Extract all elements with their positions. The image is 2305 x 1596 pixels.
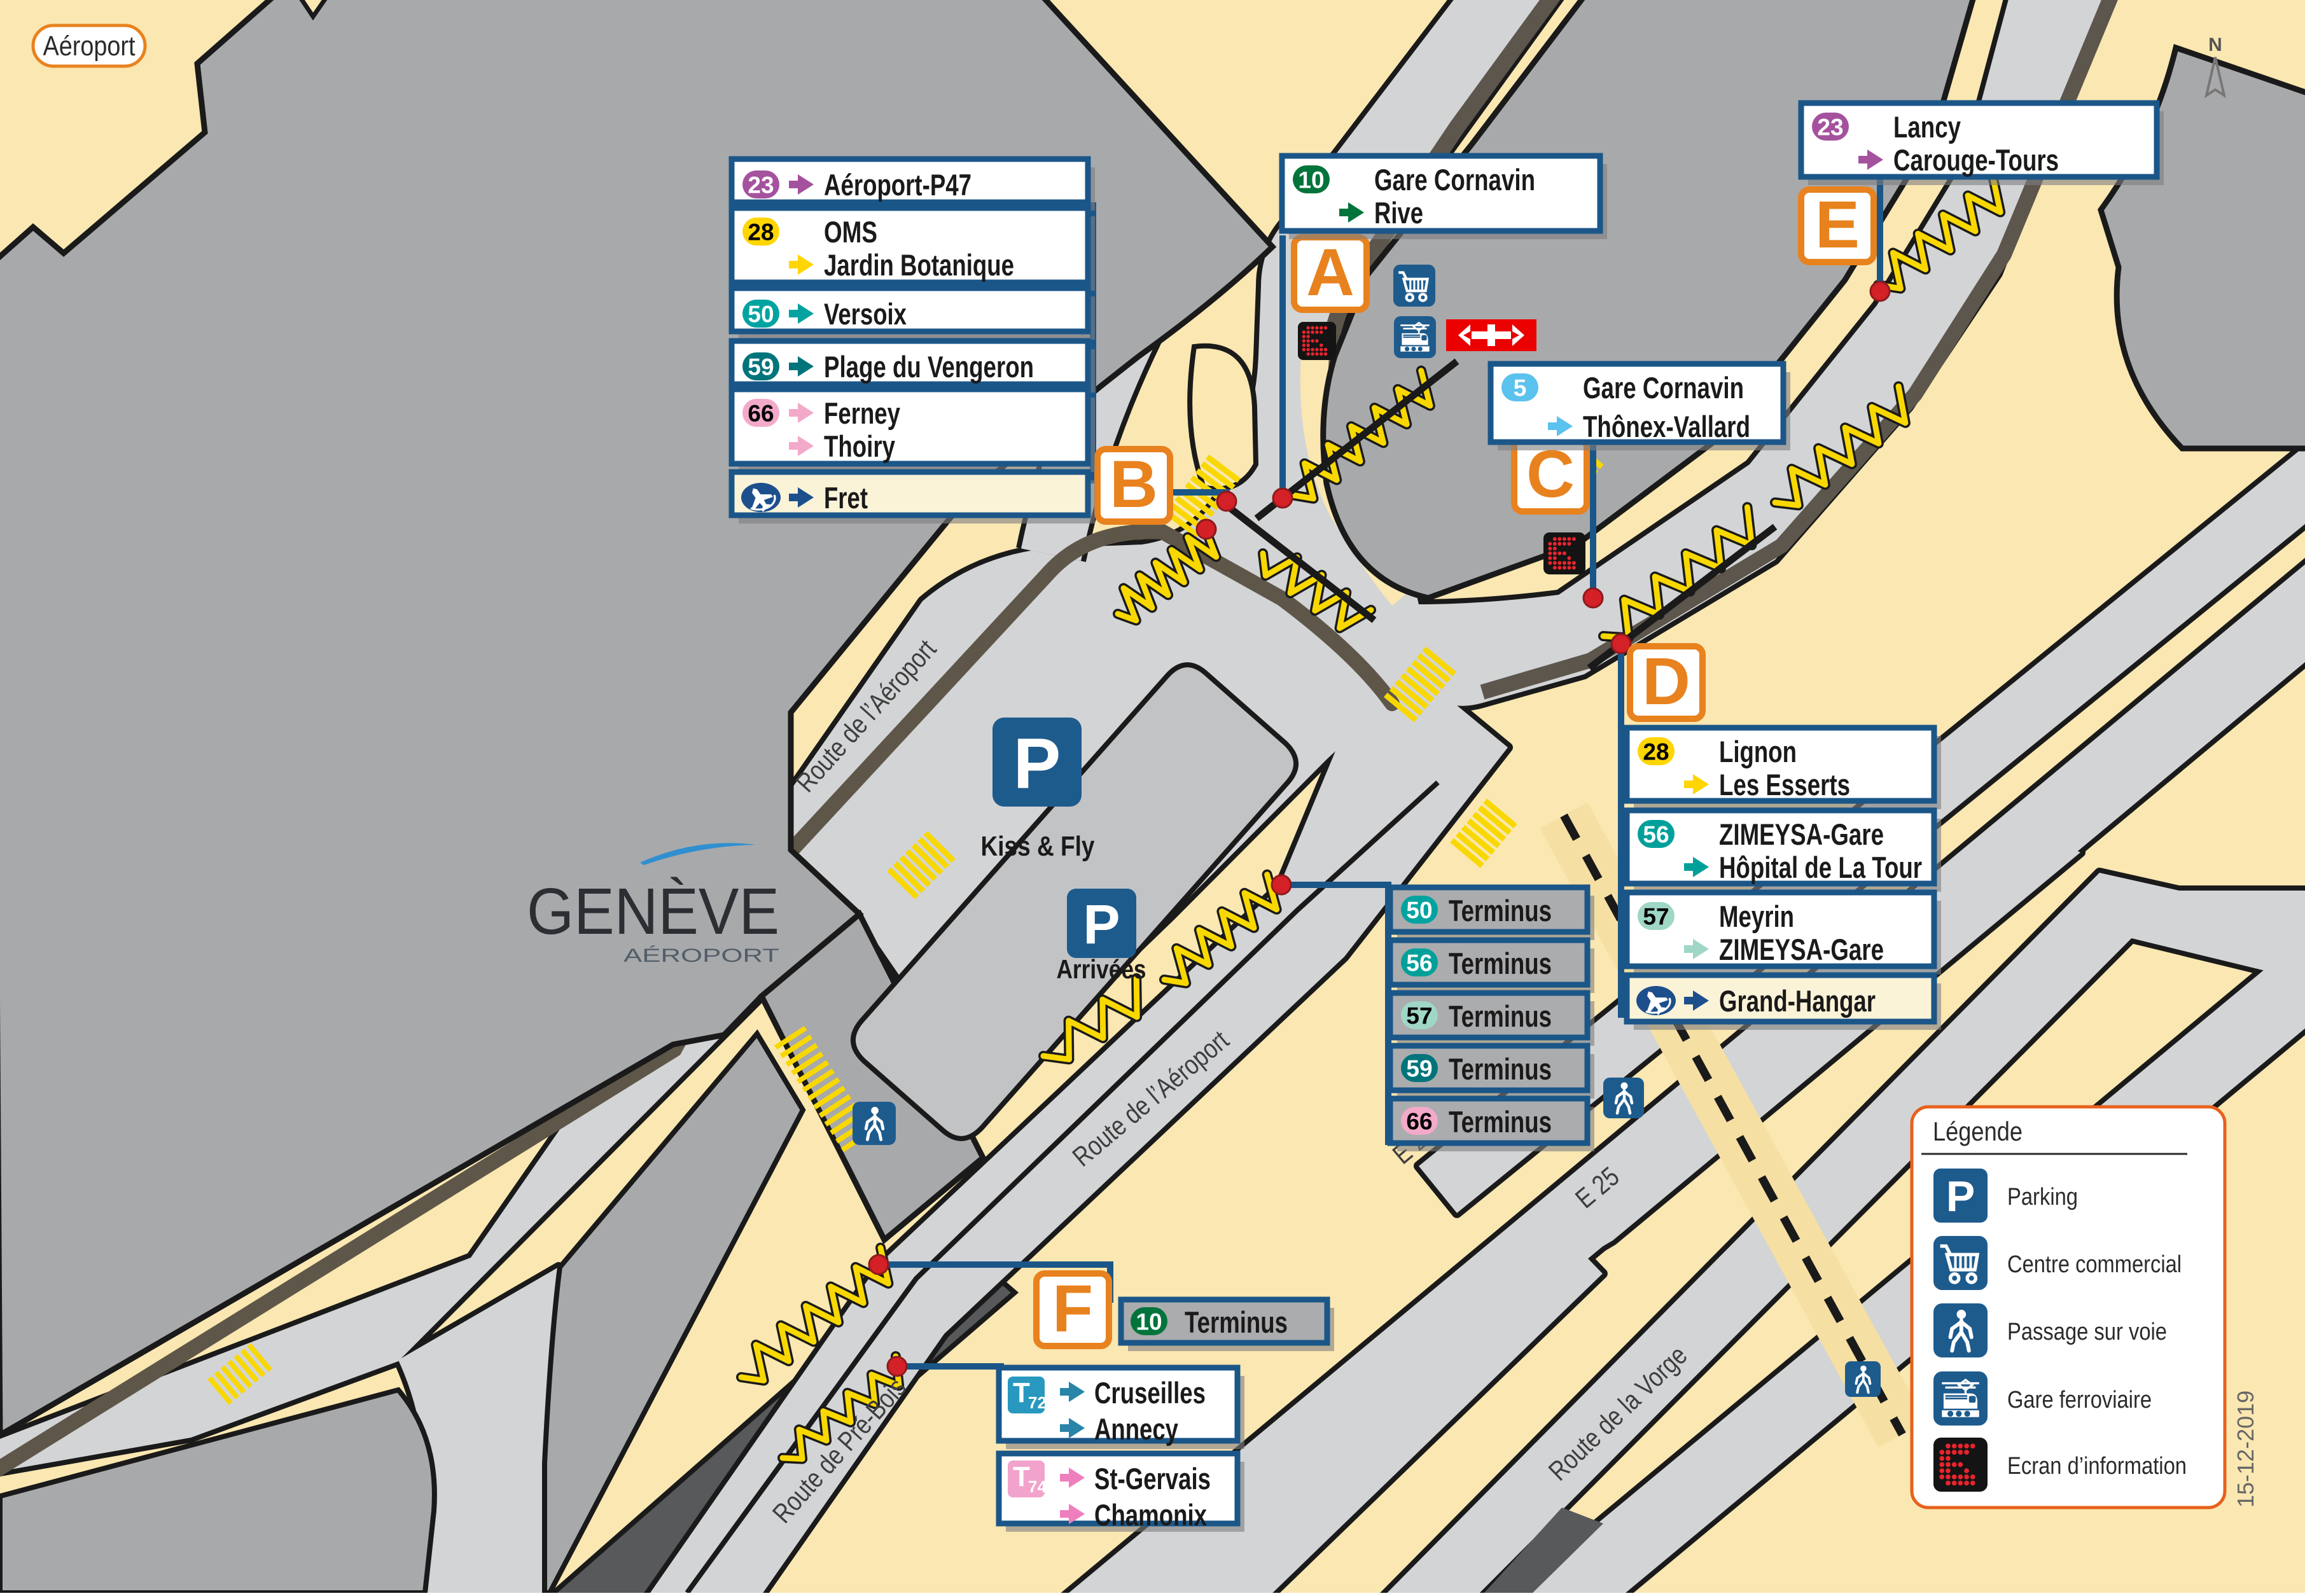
svg-text:Terminus: Terminus [1185, 1305, 1288, 1339]
svg-text:5: 5 [1514, 375, 1527, 401]
svg-text:Thônex-Vallard: Thônex-Vallard [1583, 410, 1750, 443]
svg-text:50: 50 [1406, 897, 1432, 923]
svg-text:Aéroport-P47: Aéroport-P47 [824, 168, 971, 202]
svg-text:Centre commercial: Centre commercial [2007, 1251, 2182, 1278]
svg-text:E: E [1815, 188, 1860, 262]
svg-text:59: 59 [748, 354, 774, 380]
svg-text:Terminus: Terminus [1449, 894, 1552, 927]
svg-text:23: 23 [1817, 114, 1843, 140]
svg-text:Arrivées: Arrivées [1057, 954, 1146, 984]
svg-text:P: P [1946, 1172, 1975, 1221]
svg-text:Jardin Botanique: Jardin Botanique [824, 248, 1014, 282]
svg-text:Carouge-Tours: Carouge-Tours [1893, 143, 2059, 177]
svg-text:OMS: OMS [824, 215, 877, 249]
svg-text:St-Gervais: St-Gervais [1094, 1462, 1211, 1495]
svg-text:Lancy: Lancy [1893, 110, 1961, 144]
svg-text:74: 74 [1028, 1477, 1047, 1496]
svg-text:Ecran d’information: Ecran d’information [2007, 1453, 2187, 1480]
svg-text:Grand-Hangar: Grand-Hangar [1719, 984, 1876, 1018]
svg-text:F: F [1052, 1272, 1093, 1346]
svg-text:66: 66 [748, 400, 774, 426]
svg-text:50: 50 [748, 301, 774, 327]
svg-text:AÉROPORT: AÉROPORT [623, 945, 779, 966]
svg-text:T: T [1013, 1377, 1030, 1408]
svg-text:Gare Cornavin: Gare Cornavin [1583, 371, 1744, 405]
svg-text:Gare Cornavin: Gare Cornavin [1374, 163, 1535, 197]
svg-text:P: P [1013, 723, 1061, 803]
svg-text:P: P [1083, 894, 1120, 955]
svg-text:ZIMEYSA-Gare: ZIMEYSA-Gare [1719, 817, 1884, 851]
svg-text:Cruseilles: Cruseilles [1094, 1376, 1206, 1410]
svg-text:Gare ferroviaire: Gare ferroviaire [2007, 1387, 2152, 1413]
svg-text:59: 59 [1406, 1055, 1432, 1081]
svg-text:56: 56 [1643, 821, 1669, 847]
svg-text:66: 66 [1406, 1108, 1432, 1134]
svg-text:10: 10 [1136, 1308, 1162, 1335]
svg-text:Rive: Rive [1374, 196, 1423, 230]
svg-text:Passage sur voie: Passage sur voie [2007, 1319, 2167, 1345]
svg-text:Lignon: Lignon [1719, 735, 1797, 768]
svg-text:Légende: Légende [1933, 1116, 2023, 1146]
svg-text:T: T [1013, 1461, 1030, 1492]
svg-text:Meyrin: Meyrin [1719, 899, 1794, 933]
svg-text:Thoiry: Thoiry [824, 429, 895, 463]
svg-text:Parking: Parking [2007, 1184, 2078, 1211]
svg-text:57: 57 [1643, 903, 1669, 929]
svg-text:N: N [2208, 34, 2222, 55]
svg-text:72: 72 [1028, 1393, 1047, 1412]
svg-text:ZIMEYSA-Gare: ZIMEYSA-Gare [1719, 933, 1884, 966]
svg-text:Annecy: Annecy [1094, 1412, 1178, 1446]
svg-text:B: B [1110, 447, 1158, 522]
svg-text:Terminus: Terminus [1449, 1105, 1552, 1139]
svg-text:D: D [1642, 644, 1690, 719]
svg-text:Plage du Vengeron: Plage du Vengeron [824, 350, 1034, 384]
svg-text:Les Esserts: Les Esserts [1719, 768, 1850, 801]
svg-text:A: A [1306, 235, 1354, 310]
svg-text:Chamonix: Chamonix [1094, 1498, 1207, 1532]
svg-text:Versoix: Versoix [824, 297, 907, 331]
svg-text:10: 10 [1298, 167, 1324, 193]
svg-text:57: 57 [1406, 1003, 1432, 1029]
svg-text:GENÈVE: GENÈVE [527, 875, 779, 948]
svg-text:Terminus: Terminus [1449, 1052, 1552, 1086]
svg-text:Fret: Fret [824, 481, 868, 515]
svg-text:28: 28 [748, 219, 774, 245]
svg-text:56: 56 [1406, 950, 1432, 976]
svg-text:Kiss & Fly: Kiss & Fly [981, 831, 1095, 862]
svg-text:23: 23 [748, 172, 774, 198]
svg-text:Hôpital de La Tour: Hôpital de La Tour [1719, 850, 1922, 884]
svg-text:Aéroport: Aéroport [43, 31, 136, 62]
svg-text:Terminus: Terminus [1449, 947, 1552, 980]
svg-text:15-12-2019: 15-12-2019 [2232, 1391, 2259, 1508]
svg-text:Terminus: Terminus [1449, 999, 1552, 1033]
svg-text:28: 28 [1643, 739, 1669, 765]
svg-text:Ferney: Ferney [824, 396, 900, 430]
